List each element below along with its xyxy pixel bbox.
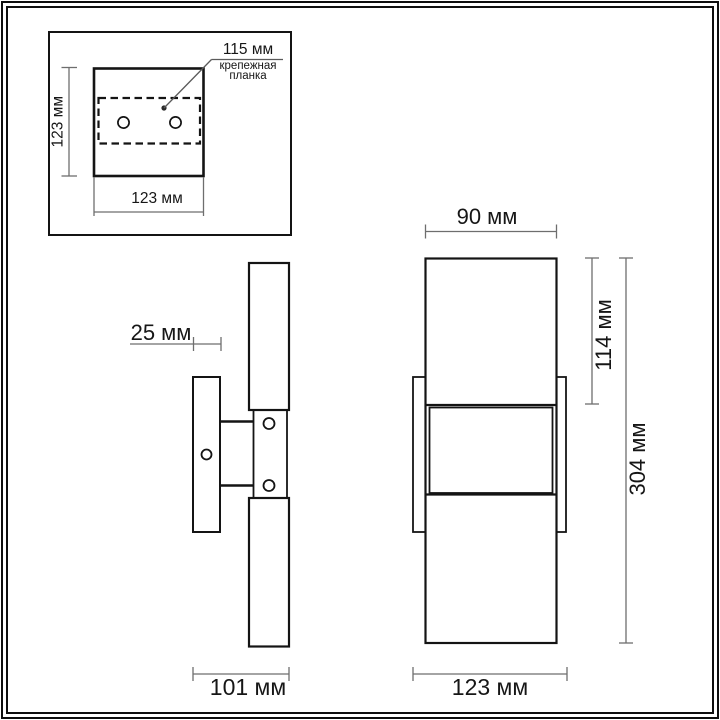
technical-drawing-page: 123 мм 123 мм 115 мм крепежная планка 25… [0,0,720,720]
inset-width-dim-label: 123 мм [107,191,207,207]
callout-part-name-line2: планка [211,72,285,82]
side-body-screw-bottom [264,480,275,491]
inset-height-dim-label: 123 мм [50,81,66,161]
side-total-depth-label: 101 мм [198,676,298,699]
front-total-height-label: 304 мм [627,414,649,504]
front-body-outline [426,259,557,644]
side-bottom-tube [249,498,289,647]
mounting-hole-right [170,117,181,128]
front-tube-width-label: 90 мм [437,206,537,228]
callout-dim-label: 115 мм [213,42,283,58]
side-top-tube [249,263,289,410]
side-plate-depth-label: 25 мм [126,322,196,344]
front-tube-height-label: 114 мм [593,290,615,380]
side-body-screw-top [264,418,275,429]
mounting-hole-left [118,117,129,128]
side-plate-hole [202,450,212,460]
front-base-width-label: 123 мм [440,676,540,699]
callout-part-name: крепежная планка [211,62,285,82]
